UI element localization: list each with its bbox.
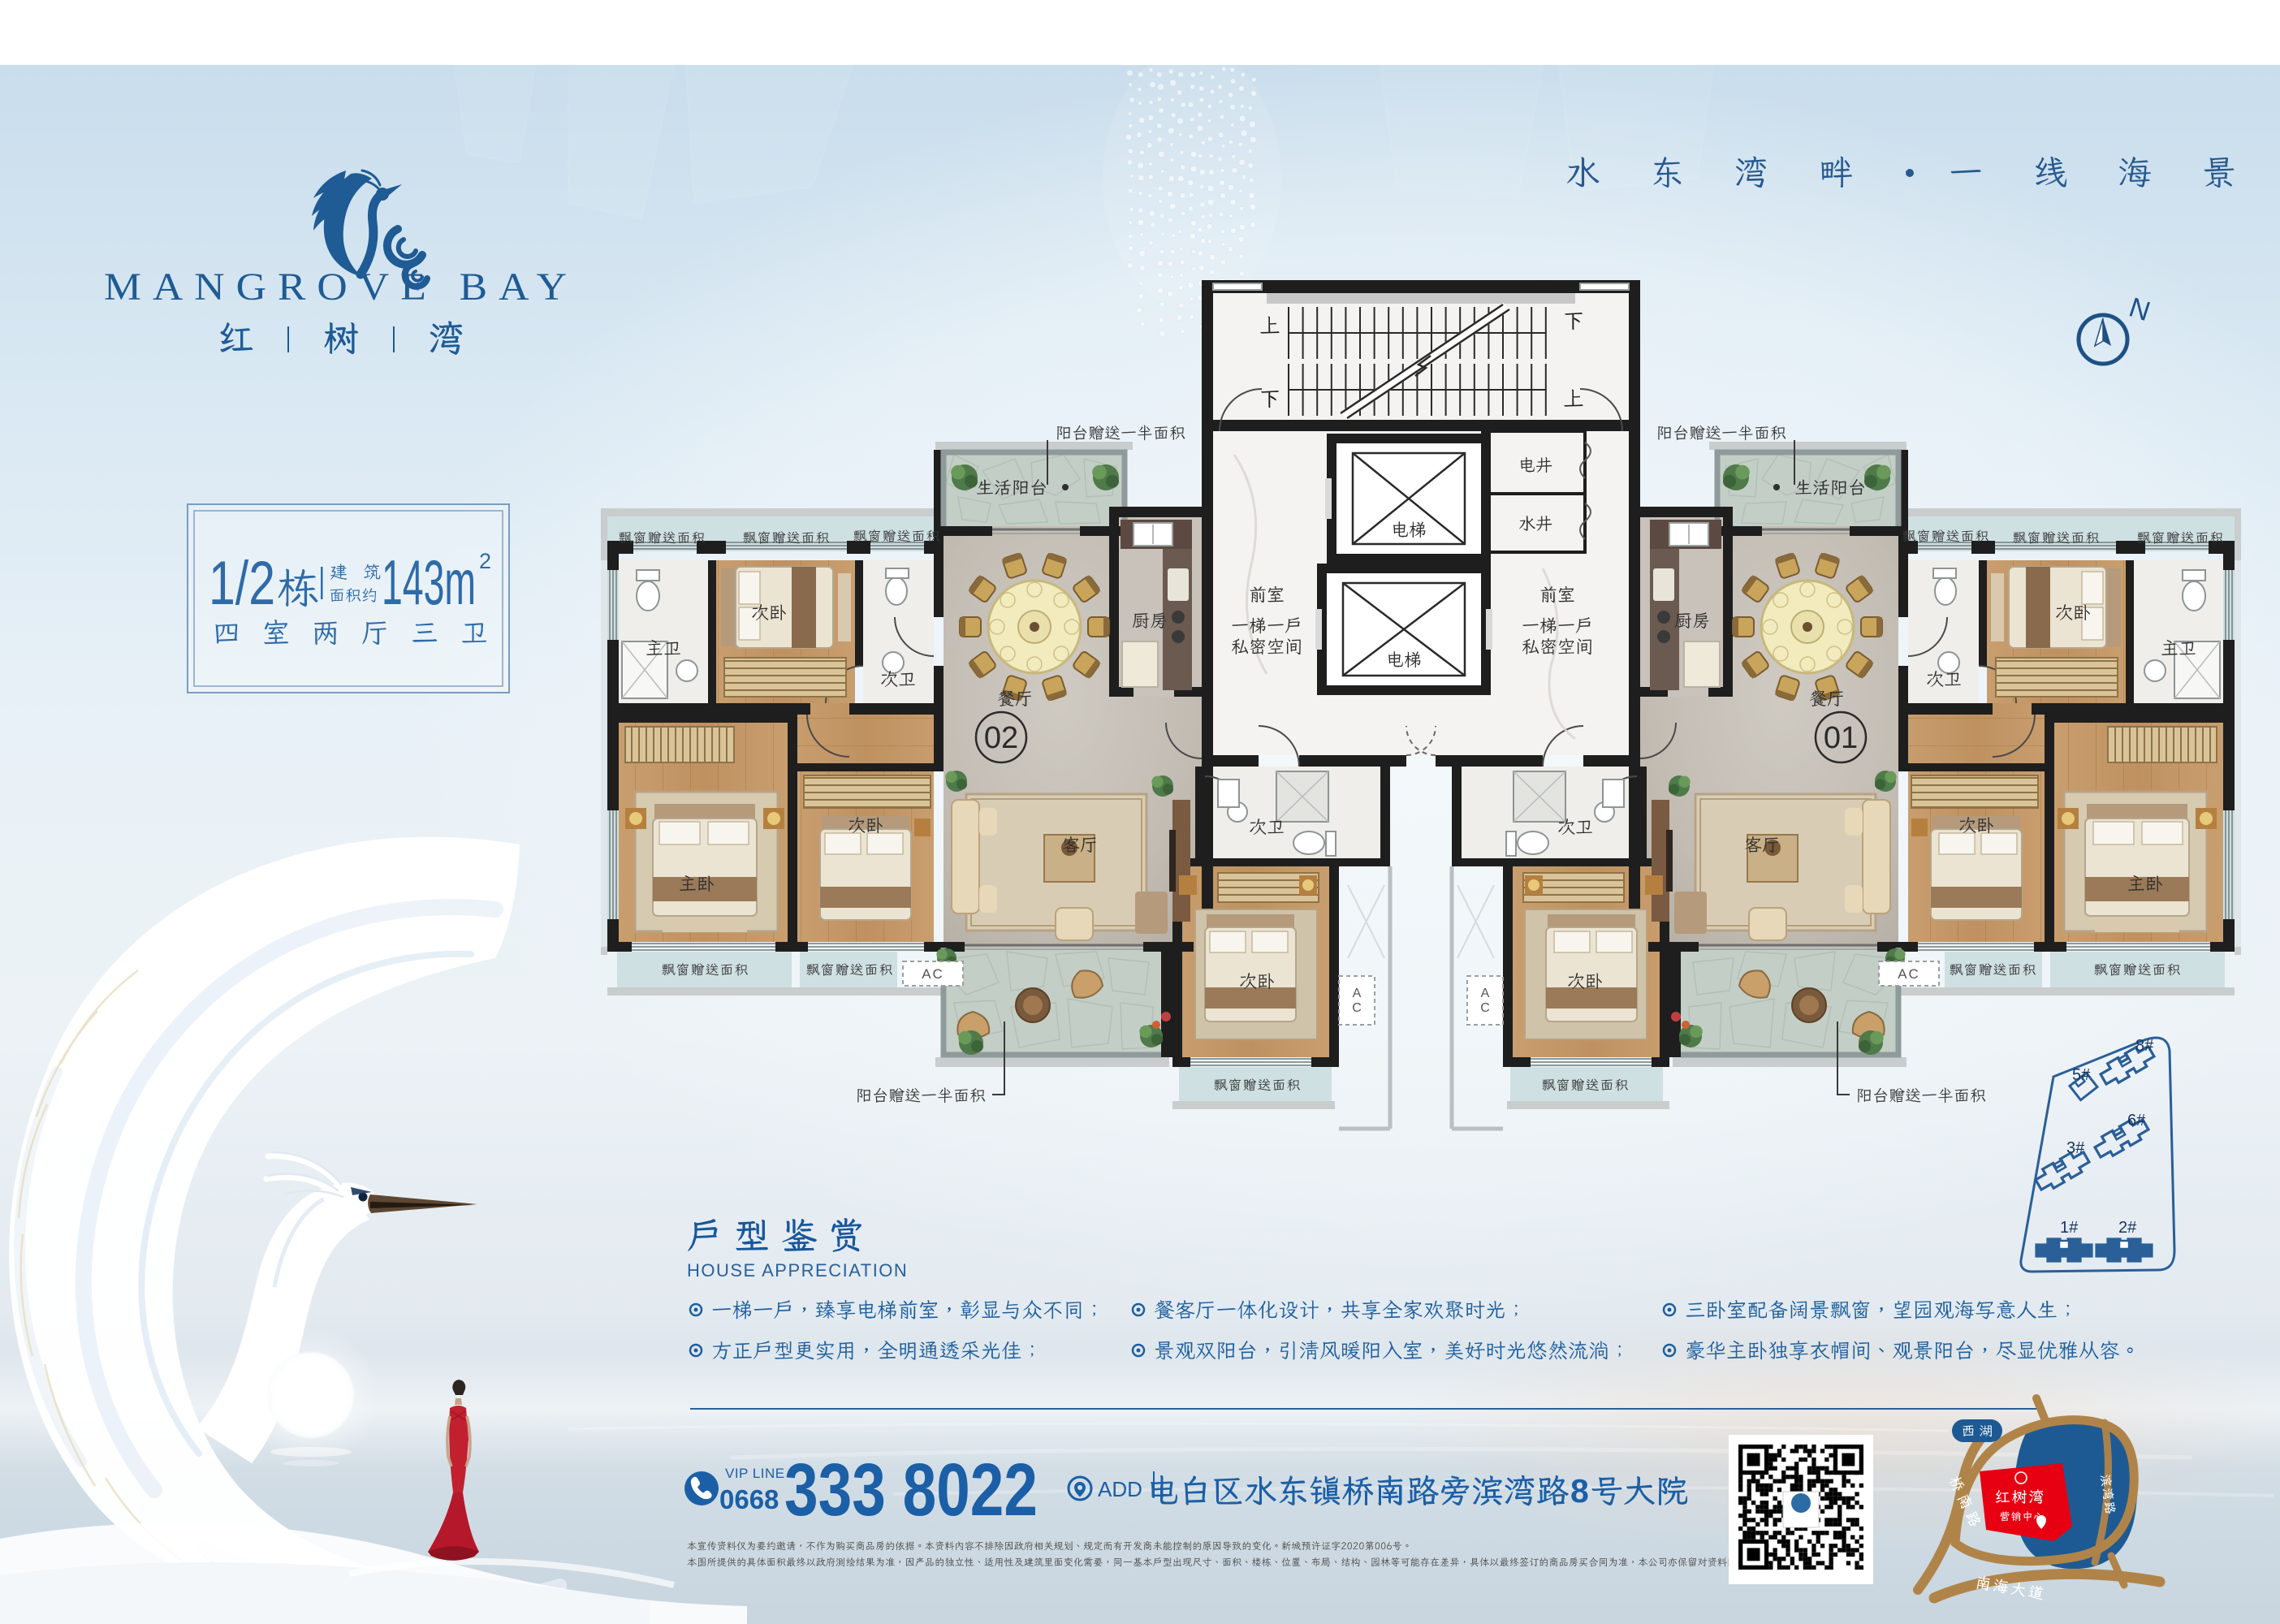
svg-text:VIP LINE: VIP LINE <box>725 1466 785 1481</box>
svg-text:3#: 3# <box>2066 1139 2085 1157</box>
svg-text:1/2: 1/2 <box>209 549 275 618</box>
svg-text:143m: 143m <box>382 546 476 618</box>
svg-text:0668: 0668 <box>719 1484 779 1514</box>
svg-text:2#: 2# <box>2118 1219 2137 1237</box>
svg-text:6#: 6# <box>2127 1112 2146 1129</box>
svg-text:C: C <box>1480 1001 1490 1015</box>
svg-text:8: 8 <box>1570 1472 1589 1510</box>
svg-text:02: 02 <box>984 721 1018 755</box>
svg-text:2: 2 <box>479 549 491 573</box>
svg-text:8#: 8# <box>2135 1037 2154 1055</box>
svg-text:A: A <box>1481 987 1490 1000</box>
svg-text:HOUSE APPRECIATION: HOUSE APPRECIATION <box>687 1260 908 1281</box>
svg-text:333 8022: 333 8022 <box>784 1449 1038 1531</box>
svg-text:AC: AC <box>1898 966 1920 982</box>
svg-text:5#: 5# <box>2072 1066 2091 1084</box>
svg-text:ADD: ADD <box>1098 1477 1142 1501</box>
svg-text:A: A <box>1353 987 1362 1000</box>
svg-text:1#: 1# <box>2060 1219 2079 1237</box>
svg-text:AC: AC <box>922 966 944 982</box>
svg-text:01: 01 <box>1824 721 1858 755</box>
svg-text:MANGROVE BAY: MANGROVE BAY <box>104 266 578 309</box>
svg-text:C: C <box>1352 1001 1362 1015</box>
